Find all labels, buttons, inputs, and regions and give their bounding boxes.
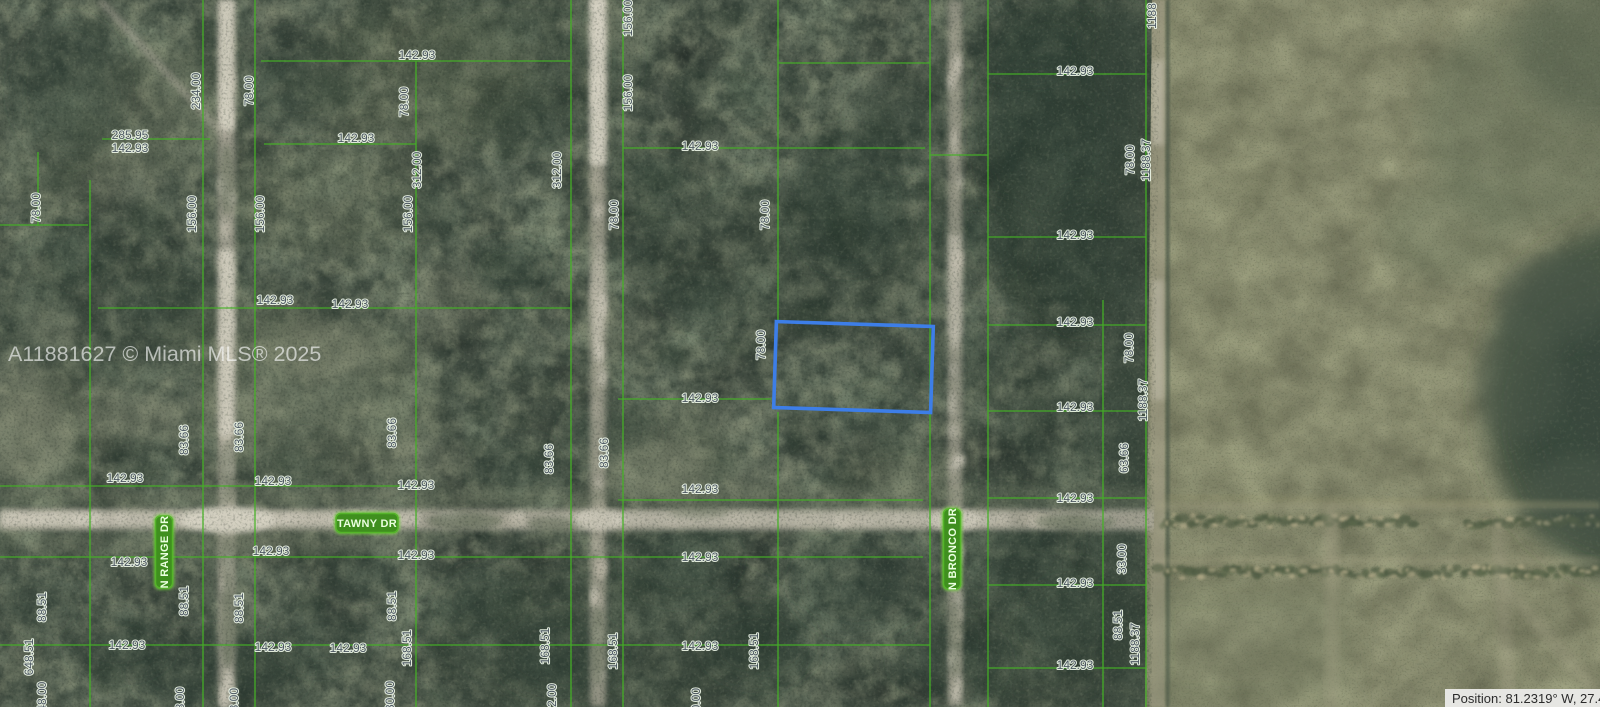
svg-text:68.00: 68.00 (173, 687, 187, 707)
svg-text:142.93: 142.93 (109, 638, 146, 652)
svg-text:312.00: 312.00 (545, 683, 559, 707)
svg-text:142.93: 142.93 (682, 139, 719, 153)
svg-text:63.66: 63.66 (1117, 443, 1131, 473)
svg-text:88.00: 88.00 (227, 688, 241, 707)
svg-text:142.93: 142.93 (255, 474, 292, 488)
svg-text:648.00: 648.00 (35, 681, 49, 707)
svg-text:78.00: 78.00 (758, 200, 772, 230)
svg-text:142.93: 142.93 (338, 131, 375, 145)
svg-text:142.93: 142.93 (682, 482, 719, 496)
svg-text:142.93: 142.93 (1057, 491, 1094, 505)
svg-text:142.93: 142.93 (1057, 64, 1094, 78)
svg-text:142.93: 142.93 (257, 293, 294, 307)
svg-text:156.00: 156.00 (621, 0, 635, 36)
svg-text:142.93: 142.93 (682, 639, 719, 653)
svg-text:1188.37: 1188.37 (1136, 378, 1150, 421)
svg-text:78.00: 78.00 (29, 193, 43, 223)
svg-text:30.00: 30.00 (383, 681, 397, 707)
svg-text:88.51: 88.51 (177, 586, 191, 616)
svg-text:83.66: 83.66 (232, 422, 246, 452)
svg-text:168.51: 168.51 (538, 627, 552, 664)
svg-text:30.00: 30.00 (689, 688, 703, 707)
svg-text:312.00: 312.00 (550, 151, 564, 188)
svg-text:78.00: 78.00 (1123, 145, 1137, 175)
svg-text:83.66: 83.66 (597, 438, 611, 468)
svg-text:142.93: 142.93 (1057, 576, 1094, 590)
svg-text:83.66: 83.66 (542, 444, 556, 474)
svg-text:312.00: 312.00 (410, 151, 424, 188)
svg-text:142.93: 142.93 (398, 478, 435, 492)
svg-text:142.93: 142.93 (399, 48, 436, 62)
svg-text:142.93: 142.93 (107, 471, 144, 485)
svg-text:168.51: 168.51 (400, 629, 414, 666)
svg-text:142.93: 142.93 (682, 550, 719, 564)
svg-text:156.00: 156.00 (401, 195, 415, 232)
svg-text:1188.37: 1188.37 (1139, 138, 1153, 181)
svg-text:142.93: 142.93 (1057, 400, 1094, 414)
svg-text:142.93: 142.93 (1057, 315, 1094, 329)
svg-text:Position: 81.2319° W, 27.4: Position: 81.2319° W, 27.4 (1452, 691, 1600, 706)
svg-text:33.00: 33.00 (1115, 544, 1129, 574)
svg-text:78.00: 78.00 (242, 76, 256, 106)
svg-text:88.51: 88.51 (232, 593, 246, 623)
svg-text:234.00: 234.00 (189, 72, 203, 109)
svg-text:142.93: 142.93 (330, 641, 367, 655)
svg-text:142.93: 142.93 (253, 544, 290, 558)
svg-text:156.00: 156.00 (185, 195, 199, 232)
svg-text:168.51: 168.51 (747, 632, 761, 669)
svg-text:142.93: 142.93 (398, 548, 435, 562)
svg-text:A11881627 © Miami MLS® 2025: A11881627 © Miami MLS® 2025 (8, 342, 321, 366)
svg-text:83.66: 83.66 (385, 418, 399, 448)
svg-text:156.00: 156.00 (253, 195, 267, 232)
svg-text:142.93: 142.93 (255, 640, 292, 654)
svg-text:285.95: 285.95 (112, 128, 149, 142)
svg-text:1188.37: 1188.37 (1128, 622, 1142, 665)
svg-text:142.93: 142.93 (112, 141, 149, 155)
svg-text:142.93: 142.93 (1057, 228, 1094, 242)
svg-text:88.51: 88.51 (1111, 610, 1125, 640)
svg-text:78.00: 78.00 (607, 200, 621, 230)
svg-text:88.51: 88.51 (385, 591, 399, 621)
svg-text:648.51: 648.51 (22, 638, 36, 675)
svg-text:156.00: 156.00 (621, 74, 635, 111)
svg-text:N BRONCO DR: N BRONCO DR (947, 508, 959, 590)
svg-text:N RANGE DR: N RANGE DR (159, 516, 171, 589)
svg-text:142.93: 142.93 (1057, 658, 1094, 672)
svg-text:78.00: 78.00 (397, 87, 411, 117)
svg-text:142.93: 142.93 (332, 297, 369, 311)
svg-text:88.51: 88.51 (35, 592, 49, 622)
svg-text:142.93: 142.93 (111, 555, 148, 569)
svg-text:142.93: 142.93 (682, 391, 719, 405)
svg-text:78.00: 78.00 (754, 330, 768, 360)
svg-text:1188: 1188 (1145, 3, 1159, 29)
svg-text:168.51: 168.51 (606, 632, 620, 669)
svg-text:83.66: 83.66 (177, 425, 191, 455)
svg-text:TAWNY DR: TAWNY DR (337, 518, 397, 530)
svg-text:78.00: 78.00 (1122, 333, 1136, 363)
